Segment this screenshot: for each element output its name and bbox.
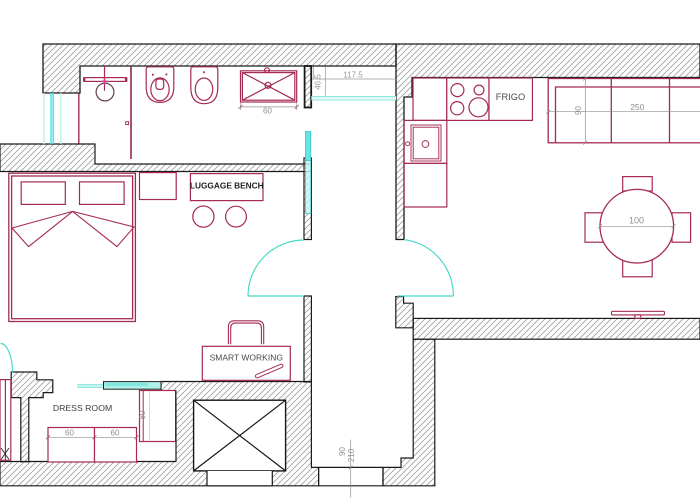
svg-text:60: 60 xyxy=(263,107,272,116)
svg-text:117.5: 117.5 xyxy=(343,71,363,80)
svg-text:SMART WORKING: SMART WORKING xyxy=(210,353,283,363)
svg-text:LUGGAGE BENCH: LUGGAGE BENCH xyxy=(190,181,264,191)
svg-text:250: 250 xyxy=(630,102,644,112)
svg-text:90: 90 xyxy=(338,447,347,456)
svg-text:90: 90 xyxy=(574,106,583,115)
svg-text:DRESS ROOM: DRESS ROOM xyxy=(53,403,112,413)
svg-text:60: 60 xyxy=(65,429,74,438)
svg-text:60: 60 xyxy=(111,429,120,438)
svg-text:46.5: 46.5 xyxy=(314,74,323,90)
svg-text:80: 80 xyxy=(138,410,147,419)
svg-text:100: 100 xyxy=(629,215,644,225)
svg-text:FRIGO: FRIGO xyxy=(496,92,525,102)
svg-text:210: 210 xyxy=(347,448,356,462)
